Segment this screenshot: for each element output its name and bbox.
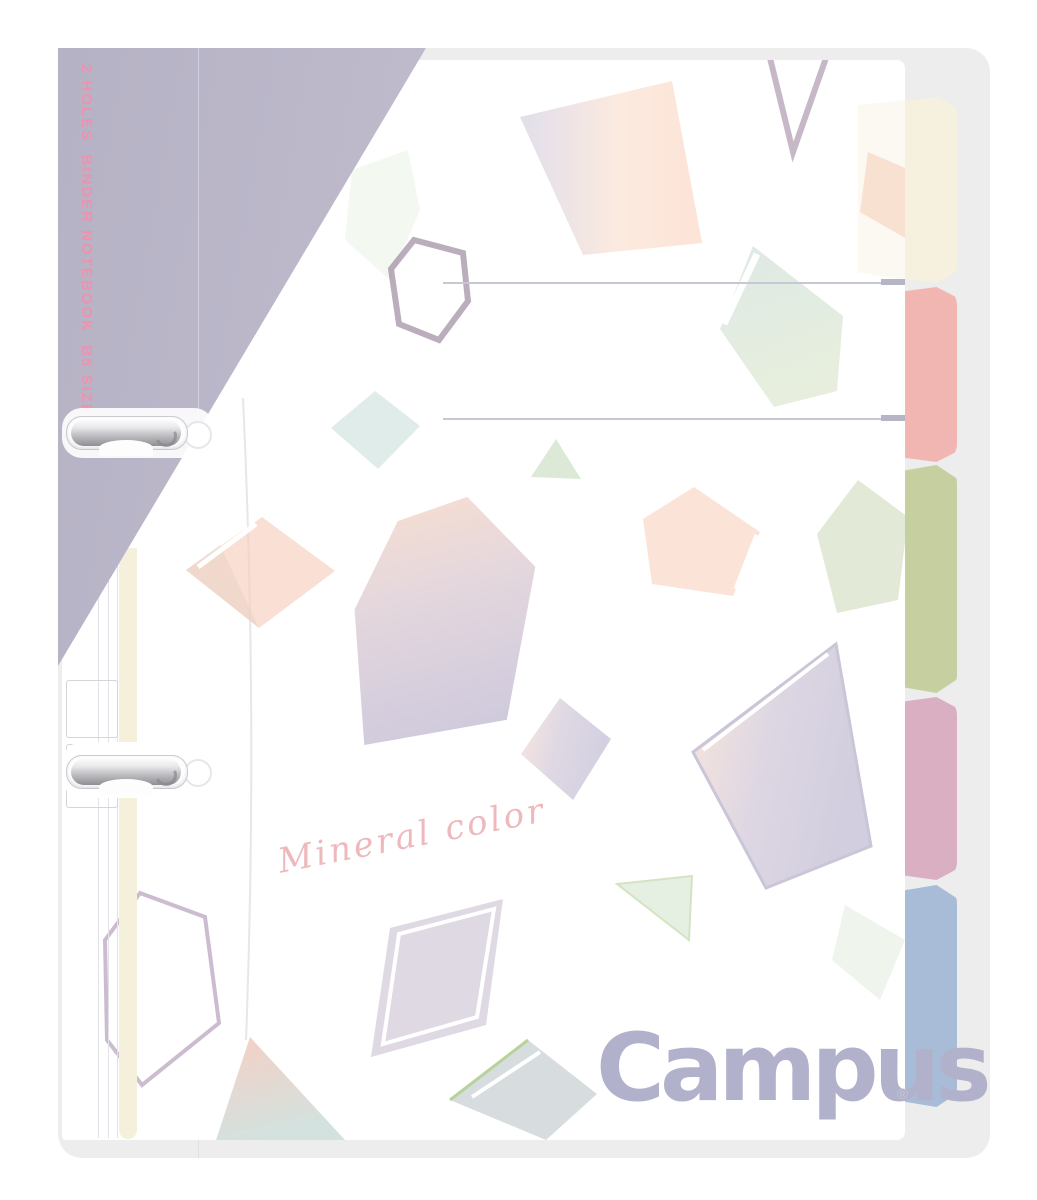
kite-outline [770, 60, 826, 152]
faint-green-pentagon [345, 150, 420, 280]
pink-teal-triangle [216, 1037, 345, 1140]
spine-text: 2 HOLES BINDER NOTEBOOK B5 SIZE [78, 64, 95, 416]
binding-grommet [184, 759, 212, 787]
pocket-edge-line [243, 398, 251, 1040]
campus-logo: Campus [596, 1014, 987, 1123]
index-tab-salmon [903, 287, 957, 462]
teal-pentagon [720, 246, 843, 407]
page-edge-line [108, 520, 109, 1138]
index-tab-cream [903, 97, 957, 283]
gray-teal-diamond [450, 1040, 597, 1140]
registered-trademark: ® [897, 1086, 908, 1103]
purple-hexagon-outline [391, 240, 468, 340]
teal-diamond [331, 391, 420, 469]
outlined-pentagon-bottom-right [693, 644, 871, 888]
metal-binding-clip-top [66, 416, 188, 450]
green-triangle [531, 439, 581, 479]
lavender-diamond-small [521, 698, 611, 800]
metal-binding-clip-bottom [66, 755, 188, 789]
title-line-1 [443, 282, 905, 284]
peach-trapezoid [520, 81, 702, 255]
product-photo: 2 HOLES BINDER NOTEBOOK B5 SIZE Mineral … [0, 0, 1037, 1200]
cream-divider-edge [119, 548, 137, 1139]
green-pentagon-right [817, 480, 905, 613]
spine-fold-seam [198, 1139, 199, 1158]
peach-diamond-left [186, 517, 335, 628]
index-tab-green [903, 465, 957, 693]
peach-pentagon-center [643, 487, 760, 596]
page-edge-line [117, 560, 118, 1138]
mint-triangle-bottom [617, 876, 692, 940]
clip-notch [99, 779, 153, 795]
binding-slot [66, 680, 118, 738]
clip-notch [99, 440, 153, 456]
wrap-fold-seam [198, 48, 199, 430]
large-watercolor-pentagon [352, 494, 538, 748]
index-tab-mauve [903, 697, 957, 880]
faint-mint-diamond [832, 905, 905, 1000]
binding-grommet [184, 421, 212, 449]
title-line-2 [443, 418, 905, 420]
